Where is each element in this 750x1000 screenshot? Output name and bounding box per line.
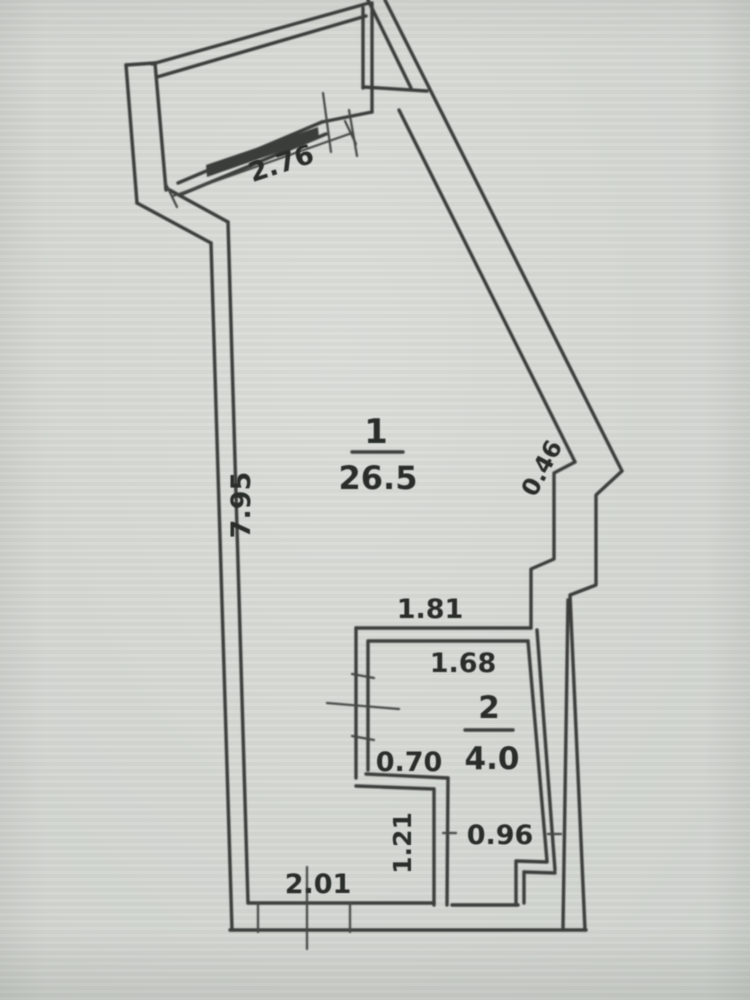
- scanned-floor-plan-page: 1 26.5 2 4.0 2.76 7.95 0.46 1.81 1.68 0.…: [0, 0, 750, 1000]
- dim-left-wall-length: 7.95: [226, 472, 257, 539]
- room1-number-label: 1: [364, 412, 388, 452]
- room2-number-label: 2: [478, 690, 500, 726]
- dim-room2-inner-width: 1.68: [430, 648, 497, 679]
- dim-room2-jog-width: 0.70: [376, 747, 443, 778]
- labels: 1 26.5 2 4.0 2.76 7.95 0.46 1.81 1.68 0.…: [226, 139, 568, 900]
- dim-room2-outer-width: 1.81: [397, 594, 464, 625]
- dim-bottom-wall-width: 2.01: [285, 869, 352, 900]
- room2-area-label: 4.0: [465, 741, 520, 777]
- balcony-walls: [126, 3, 427, 243]
- floor-plan-drawing: 1 26.5 2 4.0 2.76 7.95 0.46 1.81 1.68 0.…: [0, 0, 750, 1000]
- dim-room2-lower-width: 0.96: [467, 820, 534, 851]
- room1-area-label: 26.5: [339, 459, 418, 497]
- dim-room2-left-segment: 1.21: [388, 812, 417, 874]
